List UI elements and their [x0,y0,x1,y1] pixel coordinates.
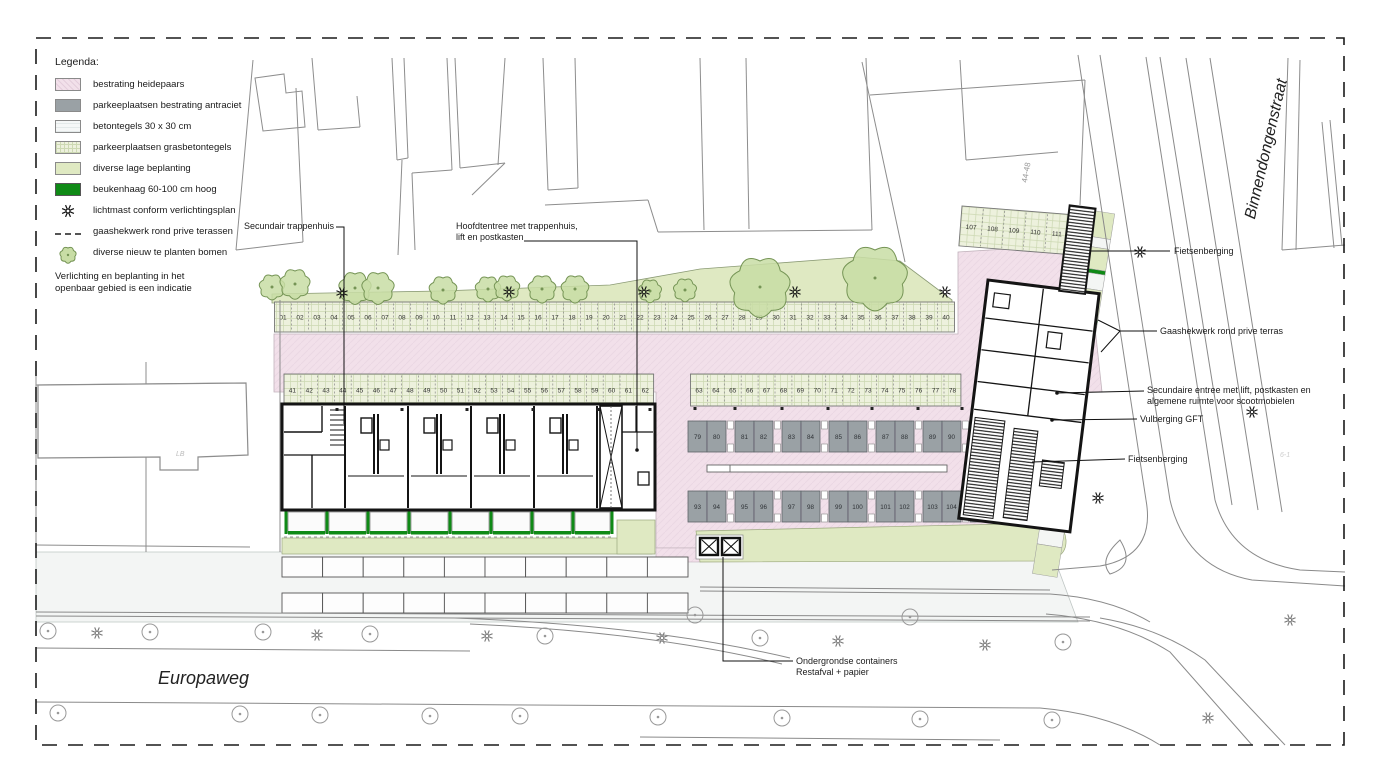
parking-space-89: 89 [929,434,937,441]
parking-space-70: 70 [814,388,822,395]
parking-space-82: 82 [760,434,768,441]
parking-space-74: 74 [881,388,889,395]
legend-item-label: lichtmast conform verlichtingsplan [93,205,236,216]
street-parking-stall [444,593,485,613]
street-parking-stall [647,557,688,577]
legend-item-label: gaashekwerk rond prive terassen [93,226,233,237]
parking-space-98: 98 [807,504,815,511]
parking-space-93: 93 [694,504,702,511]
annotation-secundaire-entree: Secundaire entree met lift, postkasten e… [1147,385,1347,407]
parking-row-mid-east: 63646566676869707172737475767778 [691,374,961,406]
parking-space-71: 71 [831,388,839,395]
street-parking-stall [526,557,567,577]
parking-space-22: 22 [636,315,644,322]
parking-space-49: 49 [423,388,431,395]
parking-space-104: 104 [946,504,957,511]
parking-space-34: 34 [840,315,848,322]
street-parking-stall [566,557,607,577]
parking-space-21: 21 [619,315,627,322]
parking-space-08: 08 [398,315,406,322]
parking-space-88: 88 [901,434,909,441]
parking-space-54: 54 [507,388,515,395]
parking-space-27: 27 [721,315,729,322]
parking-space-45: 45 [356,388,364,395]
legend-item-label: bestrating heidepaars [93,79,184,90]
legend-note: Verlichting en beplanting in het openbaa… [55,271,305,295]
street-parking-stall [485,557,526,577]
parking-space-36: 36 [874,315,882,322]
parking-space-26: 26 [704,315,712,322]
parking-space-63: 63 [695,388,703,395]
lightmast-icon [1206,716,1210,720]
legend-item-label: beukenhaag 60-100 cm hoog [93,184,217,195]
street-parking-stall [282,593,323,613]
legend-item-tile: betontegels 30 x 30 cm [55,119,305,133]
parking-space-96: 96 [760,504,768,511]
parking-space-94: 94 [713,504,721,511]
fence-dash-icon [55,233,81,235]
parking-space-66: 66 [746,388,754,395]
legend-item-label: diverse lage beplanting [93,163,191,174]
lightmast-icon [943,290,947,294]
parking-space-04: 04 [330,315,338,322]
street-parking-stall [323,593,364,613]
parking-space-40: 40 [942,315,950,322]
street-parking-stall [363,593,404,613]
parking-space-80: 80 [713,434,721,441]
parking-space-100: 100 [852,504,863,511]
parking-space-77: 77 [932,388,940,395]
legend-item-label: parkeerplaatsen grasbetontegels [93,142,231,153]
parking-row-yard-north: 7980818283848586878889909192 [688,421,1008,452]
footpath-bar [707,465,947,472]
parking-space-73: 73 [864,388,872,395]
lightmast-icon [55,204,81,217]
annotation-vulberging-gft: Vulberging GFT [1140,414,1203,425]
lightmast-icon [95,631,99,635]
parking-space-76: 76 [915,388,923,395]
parking-space-103: 103 [927,504,938,511]
parking-space-47: 47 [390,388,398,395]
legend-item-label: parkeeplaatsen bestrating antraciet [93,100,241,111]
legend-item-plant: diverse lage beplanting [55,161,305,175]
parking-space-57: 57 [558,388,566,395]
lightmast-icon [660,636,664,640]
site-plan-page: 0102030405060708091011121314151617181920… [0,0,1381,781]
lightmast-icon [485,634,489,638]
street-parking-stall [485,593,526,613]
parking-space-52: 52 [474,388,482,395]
annotation-hoofdentree: Hoofdtentree met trappenhuis, lift en po… [456,221,626,243]
tree-icon [55,244,81,266]
parking-space-41: 41 [289,388,297,395]
parking-space-09: 09 [415,315,423,322]
street-parking-stall [566,593,607,613]
parking-space-17: 17 [551,315,559,322]
street-parking-stall [607,557,648,577]
parking-space-51: 51 [457,388,465,395]
lightmast-icon [1288,618,1292,622]
parking-space-79: 79 [694,434,702,441]
underground-containers [696,535,743,559]
parking-space-62: 62 [642,388,650,395]
parking-space-44: 44 [339,388,347,395]
parking-space-16: 16 [534,315,542,322]
parking-space-59: 59 [591,388,599,395]
building-left [282,404,655,510]
parking-space-64: 64 [712,388,720,395]
parking-space-87: 87 [882,434,890,441]
hedge-swatch [55,183,81,196]
parking-row-top: 0102030405060708091011121314151617181920… [275,302,955,332]
parking-space-25: 25 [687,315,695,322]
parking-space-72: 72 [847,388,855,395]
parking-space-10: 10 [432,315,440,322]
parking-space-38: 38 [908,315,916,322]
parking-space-85: 85 [835,434,843,441]
street-parking-stall [444,557,485,577]
parking-space-101: 101 [880,504,891,511]
annotation-gaashekwerk: Gaashekwerk rond prive terras [1160,326,1283,337]
parking-space-42: 42 [306,388,314,395]
parking-space-12: 12 [466,315,474,322]
legend: Legenda: bestrating heidepaarsparkeeplaa… [55,56,305,295]
lb-parcel-label: LB [176,451,185,458]
parking-space-32: 32 [806,315,814,322]
street-parking-stall [282,557,323,577]
lightmast-icon [1250,410,1254,414]
parking-space-67: 67 [763,388,771,395]
parking-space-48: 48 [406,388,414,395]
legend-item-grass: parkeerplaatsen grasbetontegels [55,140,305,154]
parking-space-107: 107 [965,224,977,232]
parking-space-81: 81 [741,434,749,441]
street-parking-stall [526,593,567,613]
parking-space-18: 18 [568,315,576,322]
parking-space-83: 83 [788,434,796,441]
parking-space-60: 60 [608,388,616,395]
legend-item-hedge: beukenhaag 60-100 cm hoog [55,182,305,196]
parking-space-06: 06 [364,315,372,322]
parking-space-58: 58 [574,388,582,395]
parking-space-108: 108 [987,226,999,234]
parking-space-75: 75 [898,388,906,395]
parking-space-30: 30 [772,315,780,322]
parking-space-90: 90 [948,434,956,441]
lightmast-icon [315,633,319,637]
annotation-fietsenberging-top: Fietsenberging [1174,246,1234,257]
lightmast-icon [983,643,987,647]
parking-space-24: 24 [670,315,678,322]
legend-item-tree: diverse nieuw te planten bomen [55,245,305,259]
parking-space-03: 03 [313,315,321,322]
parking-space-39: 39 [925,315,933,322]
parking-space-109: 109 [1008,227,1020,235]
terraces [284,511,614,537]
legend-title: Legenda: [55,56,305,68]
parking-space-43: 43 [322,388,330,395]
parking-space-46: 46 [373,388,381,395]
legend-item-pink: bestrating heidepaars [55,77,305,91]
parking-space-33: 33 [823,315,831,322]
parking-space-68: 68 [780,388,788,395]
parking-space-99: 99 [835,504,843,511]
parking-space-02: 02 [296,315,304,322]
parking-space-50: 50 [440,388,448,395]
parking-space-53: 53 [490,388,498,395]
faint-parcel-label: 6-1 [1280,452,1290,459]
parking-space-61: 61 [625,388,633,395]
parking-space-65: 65 [729,388,737,395]
parking-space-69: 69 [797,388,805,395]
annotation-ondergrondse-containers: Ondergrondse containers Restafval + papi… [796,656,898,678]
legend-item-label: diverse nieuw te planten bomen [93,247,227,258]
parking-space-86: 86 [854,434,862,441]
pink-swatch [55,78,81,91]
parking-space-35: 35 [857,315,865,322]
street-parking-stall [323,557,364,577]
parking-space-78: 78 [949,388,957,395]
parking-space-84: 84 [807,434,815,441]
street-parking-stall [607,593,648,613]
street-parking-stall [647,593,688,613]
gray-swatch [55,99,81,112]
parking-row-mid-west: 4142434445464748495051525354555657585960… [284,374,654,406]
street-parking-stall [404,557,445,577]
parking-space-56: 56 [541,388,549,395]
parking-space-55: 55 [524,388,532,395]
parking-space-37: 37 [891,315,899,322]
plant-swatch [55,162,81,175]
parking-space-20: 20 [602,315,610,322]
parking-space-07: 07 [381,315,389,322]
annotation-secundair-trappenhuis: Secundair trappenhuis [238,221,334,232]
parking-space-11: 11 [450,315,457,322]
street-parking-stall [404,593,445,613]
parking-space-19: 19 [585,315,593,322]
parking-space-110: 110 [1030,229,1041,237]
parking-space-28: 28 [738,315,746,322]
grass-swatch [55,141,81,154]
street-parking-stall [363,557,404,577]
parking-space-102: 102 [899,504,910,511]
parking-space-14: 14 [500,315,508,322]
parking-space-95: 95 [741,504,749,511]
parking-space-15: 15 [517,315,525,322]
parking-space-31: 31 [789,315,797,322]
street-label-europaweg: Europaweg [158,668,249,689]
parking-space-23: 23 [653,315,661,322]
legend-item-gray: parkeeplaatsen bestrating antraciet [55,98,305,112]
lightmast-icon [1096,496,1100,500]
parking-space-13: 13 [483,315,491,322]
parking-space-01: 01 [279,315,287,322]
parking-space-111: 111 [1052,231,1063,239]
parking-space-97: 97 [788,504,796,511]
annotation-fietsenberging-bottom: Fietsenberging [1128,454,1188,465]
tile-swatch [55,120,81,133]
parking-space-05: 05 [347,315,355,322]
legend-item-label: betontegels 30 x 30 cm [93,121,191,132]
lightmast-icon [836,639,840,643]
legend-item-star: lichtmast conform verlichtingsplan [55,203,305,217]
